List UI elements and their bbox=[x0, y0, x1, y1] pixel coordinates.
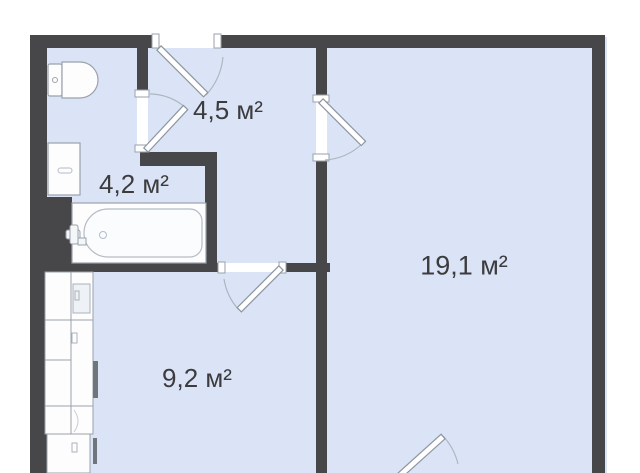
room-label-living-room: 19,1 м² bbox=[420, 253, 508, 280]
wall-kitchen-top-left bbox=[30, 263, 220, 272]
floor-plan-canvas: 4,5 м² 4,2 м² 9,2 м² 19,1 м² bbox=[0, 0, 640, 473]
kitchen-cabinets-icon bbox=[45, 272, 98, 473]
wall-hall-living-upper bbox=[316, 48, 327, 97]
kitchen-opening bbox=[222, 263, 282, 272]
wall-toilet-divider bbox=[137, 48, 148, 92]
room-label-hallway: 4,5 м² bbox=[193, 97, 263, 123]
bathroom-opening bbox=[137, 94, 148, 148]
bathroom-jamb-top bbox=[135, 90, 149, 97]
wall-left bbox=[30, 35, 47, 473]
bathtub-icon bbox=[66, 203, 206, 263]
wall-top-left bbox=[30, 35, 153, 48]
wall-hall-living-lower bbox=[316, 160, 327, 263]
entrance-jamb-left bbox=[152, 34, 159, 48]
room-label-bathroom: 4,2 м² bbox=[99, 171, 169, 197]
wall-right bbox=[592, 35, 605, 473]
floor-plan-drawing bbox=[0, 0, 640, 473]
wall-top-right bbox=[221, 35, 605, 48]
toilet-icon bbox=[48, 62, 98, 98]
fridge-icon bbox=[47, 434, 90, 473]
room-label-kitchen: 9,2 м² bbox=[162, 365, 232, 391]
wall-kitchen-living-divider bbox=[316, 263, 327, 473]
entrance-jamb-right bbox=[214, 34, 221, 48]
kitchen-jamb-left bbox=[218, 262, 225, 273]
sink-icon bbox=[48, 143, 80, 195]
entrance-opening bbox=[153, 35, 221, 48]
wall-bathroom-right bbox=[205, 152, 217, 263]
